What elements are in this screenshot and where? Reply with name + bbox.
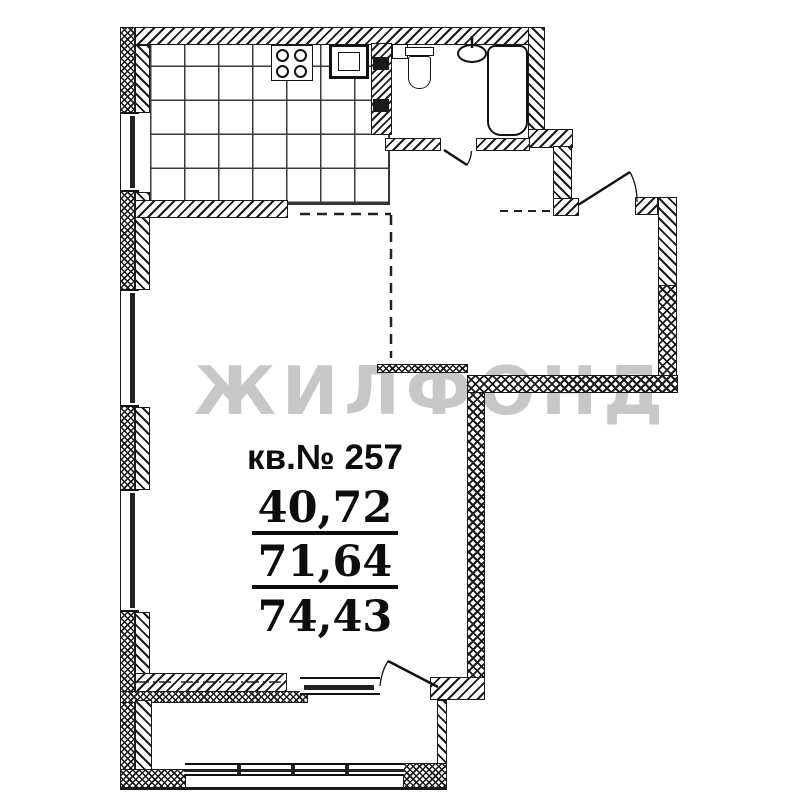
area-living-label: 40,72 xyxy=(229,487,421,535)
area-living-value: 40,72 xyxy=(252,487,399,535)
bathroom-door-arc xyxy=(467,151,472,165)
balcony-door-arc xyxy=(380,661,388,686)
area-total-label: 71,64 xyxy=(229,541,421,589)
area-with-balcony-value: 74,43 xyxy=(252,596,399,640)
apartment-number-label: кв.№ 257 xyxy=(229,438,421,478)
linework-overlay xyxy=(0,0,800,800)
entrance-door-arc xyxy=(630,172,637,202)
entrance-door-leaf xyxy=(578,172,630,205)
area-total-value: 71,64 xyxy=(252,541,399,589)
area-with-balcony-label: 74,43 xyxy=(229,596,421,640)
balcony-door-leaf xyxy=(388,661,438,687)
bathroom-door-leaf xyxy=(444,150,467,165)
floor-plan: ЖИЛФОНД xyxy=(0,0,800,800)
